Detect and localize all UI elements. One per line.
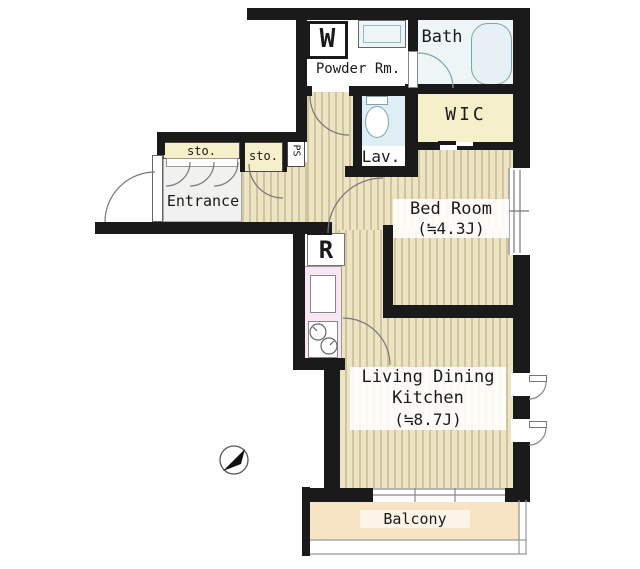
entrance-closet-front bbox=[166, 158, 238, 167]
wall-lav-bottom bbox=[345, 166, 418, 177]
kitchen-sink-icon bbox=[310, 275, 336, 313]
lavatory-label: Lav. bbox=[357, 147, 405, 166]
floor-plan: W Powder Rm. Bath WIC Lav. sto. sto. PS … bbox=[0, 0, 640, 569]
ldk-window-1-leaf bbox=[529, 375, 547, 382]
ldk-label-block: Living Dining Kitchen (≒8.7J) bbox=[350, 367, 506, 430]
wall-balcony-left bbox=[302, 487, 310, 556]
corridor-floor-top bbox=[307, 92, 353, 172]
wall-ldk-left-lower bbox=[324, 367, 340, 492]
wall-ldk-bottom-left bbox=[305, 488, 375, 502]
ldk-window-2-leaf bbox=[529, 421, 547, 428]
entrance-label: Entrance bbox=[165, 192, 241, 210]
bedroom-label: Bed Room bbox=[393, 199, 509, 219]
ldk-window-2 bbox=[511, 419, 530, 442]
storage1-label: sto. bbox=[163, 144, 240, 158]
ldk-size-label: (≒8.7J) bbox=[350, 409, 506, 430]
wic-slide-door-b bbox=[457, 146, 475, 150]
wall-top bbox=[247, 8, 530, 20]
wall-entrance-top bbox=[157, 132, 307, 142]
powder-room-label: Powder Rm. bbox=[308, 61, 408, 77]
ldk-window-1 bbox=[511, 373, 530, 396]
wall-right-3 bbox=[513, 396, 530, 419]
wall-powder-bottom bbox=[296, 86, 312, 96]
wall-lav-right bbox=[405, 96, 418, 166]
washing-machine-label: W bbox=[307, 24, 348, 54]
wall-right-1 bbox=[513, 20, 530, 168]
washstand-sink-icon bbox=[358, 20, 406, 48]
wall-ldk-bottom-right bbox=[505, 488, 530, 502]
balcony-sliding-door bbox=[373, 488, 505, 502]
wic-slide-door-a bbox=[438, 141, 456, 145]
bath-label: Bath bbox=[416, 27, 468, 47]
bedroom-window bbox=[508, 168, 530, 255]
wall-entrance-bottom bbox=[95, 222, 307, 234]
wall-wic-bottom-2 bbox=[473, 142, 513, 150]
compass-north-icon bbox=[220, 446, 248, 474]
ldk-label-line2: Kitchen bbox=[350, 388, 506, 409]
ldk-window-1-arc bbox=[529, 382, 546, 399]
bathtub-icon bbox=[471, 23, 512, 85]
ldk-label-line1: Living Dining bbox=[350, 367, 506, 388]
bedroom-size-label: (≒4.3J) bbox=[393, 219, 509, 238]
wall-sto-sep2 bbox=[283, 142, 287, 172]
refrigerator-label: R bbox=[307, 236, 345, 264]
wall-wic-bottom-1 bbox=[405, 142, 440, 150]
wall-powder-left bbox=[296, 8, 307, 142]
storage2-label: sto. bbox=[244, 149, 283, 163]
toilet-icon bbox=[364, 96, 390, 140]
ldk-floor bbox=[338, 230, 513, 488]
wic-label: WIC bbox=[424, 104, 508, 125]
wall-above-refrigerator bbox=[307, 222, 332, 235]
wall-bedroom-bottom bbox=[383, 305, 530, 318]
bath-door-leaf bbox=[408, 51, 418, 88]
stove-icon bbox=[308, 321, 338, 358]
front-door-leaf bbox=[152, 155, 163, 222]
ldk-window-2-arc bbox=[529, 428, 546, 445]
entrance-floor bbox=[163, 158, 242, 222]
front-door-arc bbox=[105, 172, 155, 222]
balcony-label: Balcony bbox=[360, 510, 470, 528]
wall-kitchen-left bbox=[293, 230, 305, 370]
bedroom-label-block: Bed Room (≒4.3J) bbox=[393, 199, 509, 238]
pipe-space-label: PS bbox=[291, 142, 302, 160]
wall-bath-bottom bbox=[405, 84, 513, 94]
